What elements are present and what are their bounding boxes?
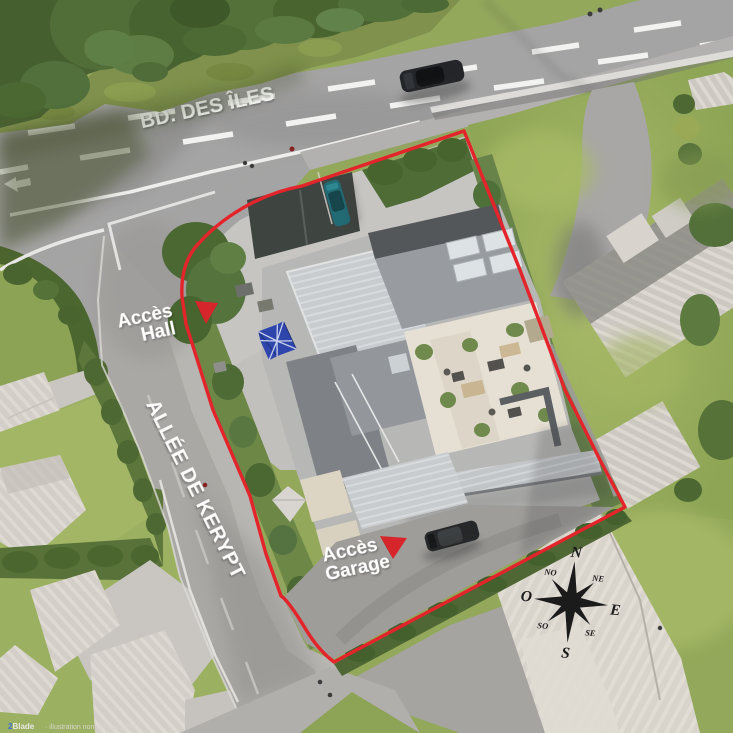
svg-text:SO: SO [537,620,549,631]
svg-text:N: N [569,544,583,562]
svg-text:O: O [520,588,533,606]
svg-text:NO: NO [543,566,557,577]
svg-text:2Blade: 2Blade [8,722,35,731]
svg-text:· illustration non contractuel: · illustration non contractuelle [45,724,136,731]
svg-text:S: S [560,644,570,662]
svg-text:E: E [609,601,622,619]
svg-text:SE: SE [585,627,597,638]
svg-text:NE: NE [591,573,605,584]
